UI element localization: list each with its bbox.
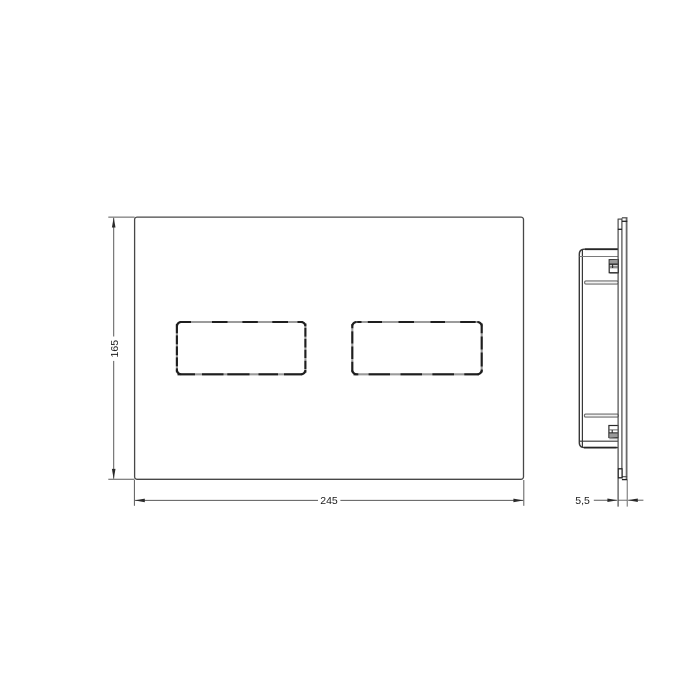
svg-text:5,5: 5,5: [575, 495, 590, 507]
svg-text:165: 165: [109, 340, 121, 358]
svg-text:245: 245: [320, 495, 338, 507]
